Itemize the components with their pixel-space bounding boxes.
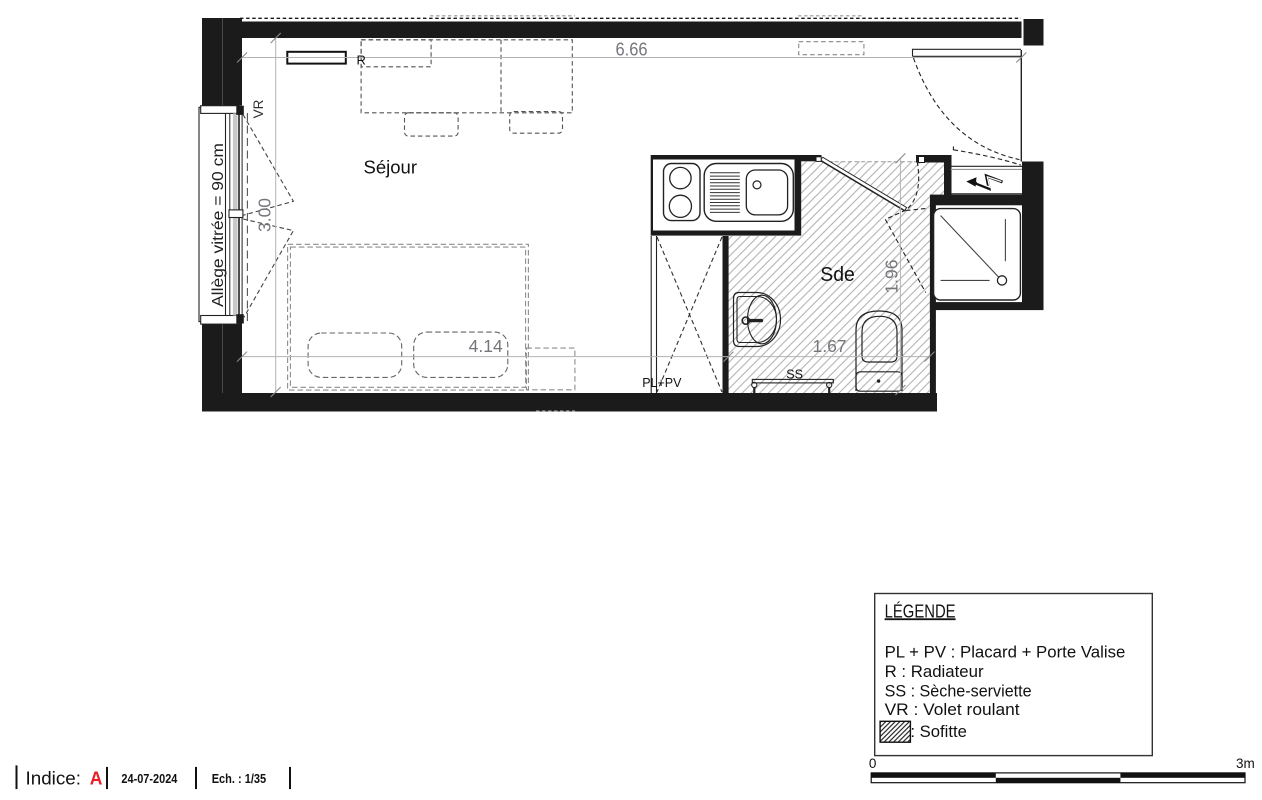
svg-text:Allège vitrée = 90 cm: Allège vitrée = 90 cm: [210, 143, 227, 307]
svg-text:PL+PV: PL+PV: [642, 376, 682, 390]
svg-text:4.14: 4.14: [469, 336, 503, 356]
svg-text:Indice:: Indice:: [26, 767, 82, 788]
svg-text:VR : Volet roulant: VR : Volet roulant: [885, 701, 1020, 719]
svg-text:Sde: Sde: [820, 263, 855, 286]
svg-text:24-07-2024: 24-07-2024: [121, 772, 177, 786]
svg-text:LÉGENDE: LÉGENDE: [885, 600, 956, 621]
svg-text:3.00: 3.00: [255, 198, 275, 232]
svg-text:Séjour: Séjour: [364, 157, 417, 178]
svg-text:PL + PV : Placard + Porte Vali: PL + PV : Placard + Porte Valise: [885, 643, 1126, 661]
svg-text:VR: VR: [251, 99, 266, 118]
svg-text:1.96: 1.96: [881, 260, 901, 294]
svg-text:6.66: 6.66: [616, 40, 648, 60]
svg-text:1.67: 1.67: [812, 336, 846, 356]
svg-text:Ech. : 1/35: Ech. : 1/35: [212, 772, 267, 786]
svg-text:SS: SS: [786, 368, 803, 382]
svg-text:R: R: [357, 52, 366, 67]
svg-text:R : Radiateur: R : Radiateur: [885, 663, 985, 681]
svg-text:A: A: [90, 767, 103, 788]
svg-text:0: 0: [869, 756, 877, 771]
svg-text:: Sofitte: : Sofitte: [910, 723, 967, 741]
svg-text:SS : Sèche-serviette: SS : Sèche-serviette: [885, 683, 1032, 701]
svg-text:3m: 3m: [1236, 756, 1255, 771]
